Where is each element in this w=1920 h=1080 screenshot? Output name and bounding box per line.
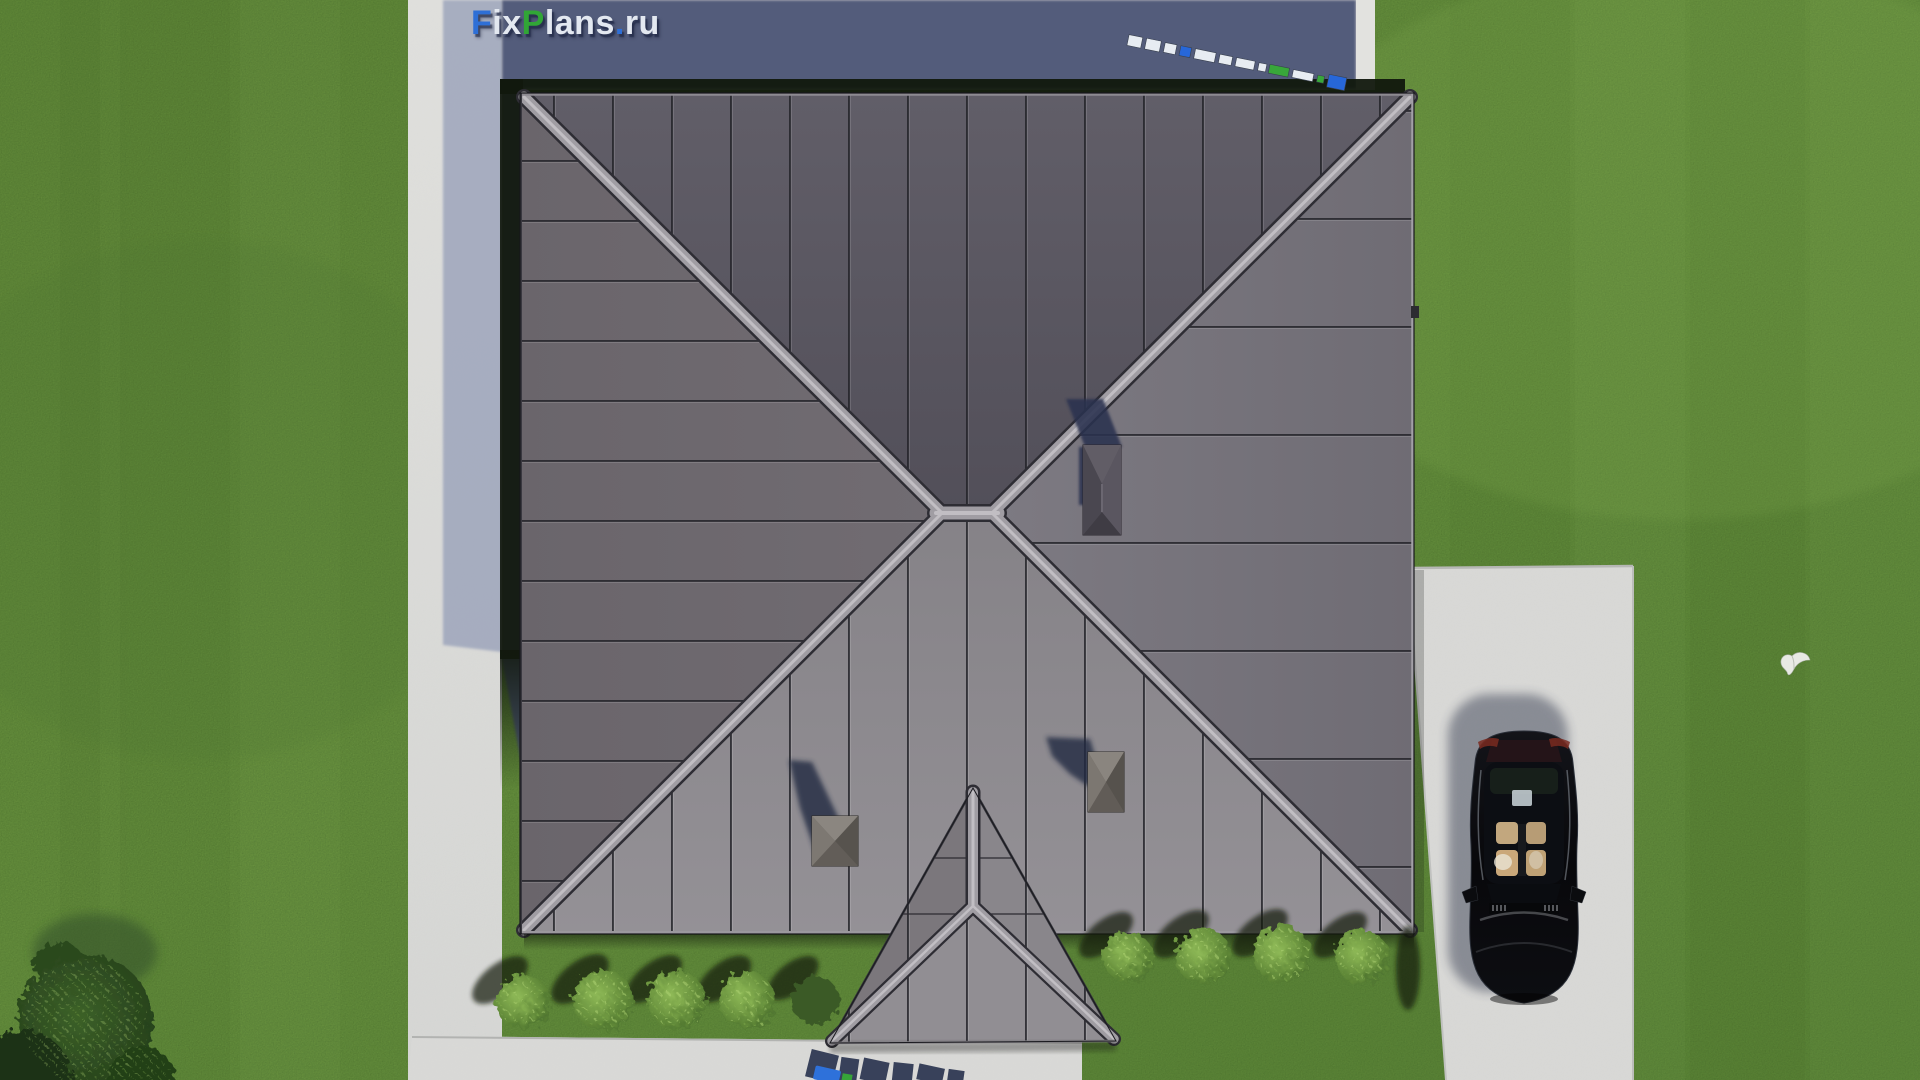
vent-cap	[812, 816, 858, 866]
bush-shaded	[791, 976, 839, 1024]
downspout	[1411, 306, 1419, 318]
sunlit-walkway-strip	[1356, 0, 1375, 90]
car-windshield	[1487, 884, 1561, 903]
vent-cap	[1088, 752, 1124, 812]
shadow-on-walkway	[443, 0, 502, 652]
car-front-shade	[1490, 993, 1558, 1005]
logo-seg-dot: .	[615, 4, 625, 42]
watermark-block-blue	[1179, 46, 1192, 58]
fixplans-logo: FixPlans.ru	[471, 4, 660, 43]
black-car	[1448, 694, 1586, 1005]
logo-seg-ru: ru	[625, 4, 660, 42]
scene-canvas	[0, 0, 1920, 1080]
logo-seg-ix: ix	[492, 4, 521, 42]
aerial-render-scene: FixPlans.ru	[0, 0, 1920, 1080]
logo-seg-lans: lans	[545, 4, 615, 42]
logo-seg-p: P	[522, 4, 545, 42]
logo-seg-f: F	[471, 4, 492, 42]
